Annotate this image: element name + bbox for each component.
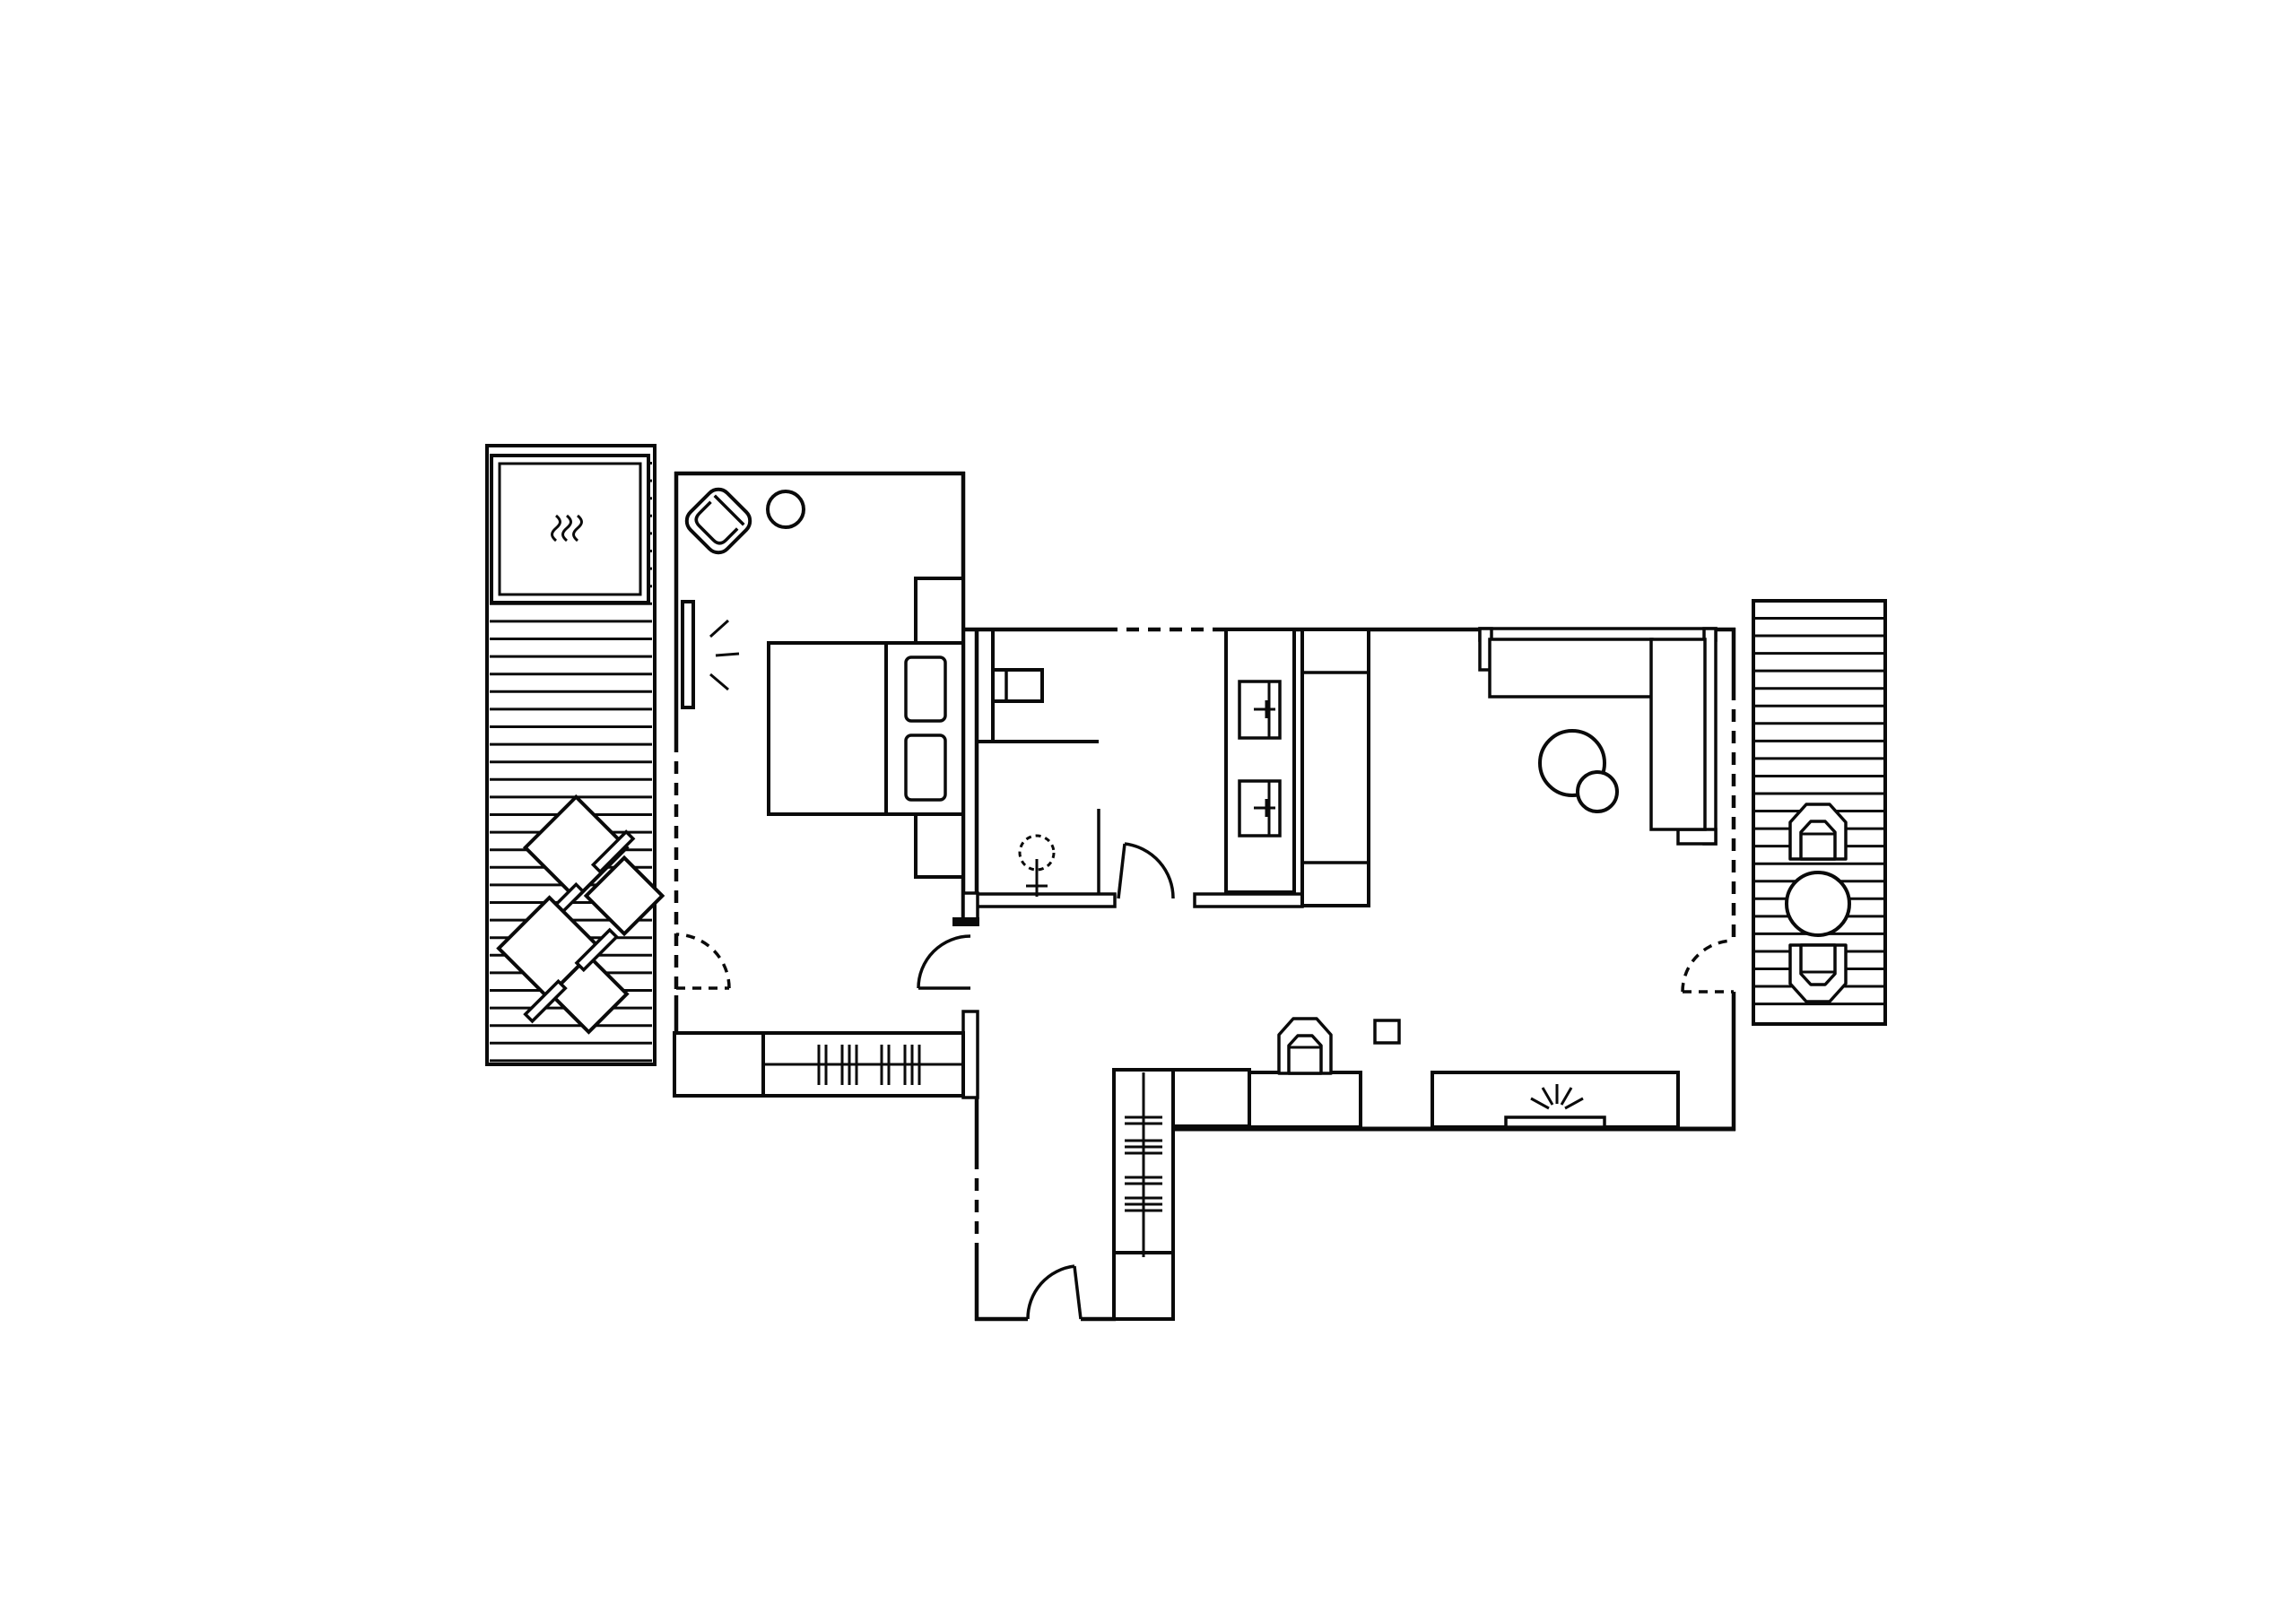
floorplan-page — [0, 0, 2296, 1623]
deck-chair-bottom-inner — [1801, 945, 1835, 985]
wall-mirror — [683, 602, 693, 707]
sofa-seat-vertical — [1651, 639, 1705, 829]
mirror-ray — [710, 621, 728, 637]
sofa-seat-horizontal — [1490, 639, 1652, 697]
coffee-table-small — [1578, 772, 1617, 811]
hall-cabinet — [1173, 1070, 1249, 1126]
bedroom-side-table — [768, 491, 804, 527]
nightstand-bottom — [916, 814, 963, 877]
deck-table — [1787, 872, 1849, 935]
tall-cabinet — [1302, 629, 1369, 906]
bathroom-sink — [993, 670, 1042, 701]
waste-bin — [1375, 1020, 1399, 1043]
tv — [1506, 1117, 1605, 1127]
door-jamb-cap — [952, 917, 979, 926]
mirror-ray — [710, 674, 728, 690]
appliance-column — [1226, 629, 1294, 892]
wall-slab-bathroom-left — [977, 894, 1115, 907]
wall-slab-bathroom-right — [1195, 894, 1302, 907]
entry-door-arc — [1028, 1266, 1074, 1319]
bathroom-door-arc — [1125, 844, 1173, 898]
desk-chair-inner — [1289, 1036, 1321, 1073]
bathroom-door-leaf — [1118, 844, 1125, 898]
pillow — [906, 735, 945, 800]
armchair-outer — [682, 484, 755, 558]
hot-tub-outer — [491, 456, 648, 603]
floorplan-canvas — [0, 0, 2296, 1623]
deck-door-living-arc — [1683, 941, 1734, 992]
mirror-ray — [716, 654, 739, 655]
nightstand-top — [916, 578, 963, 643]
entry-door-leaf — [1074, 1266, 1081, 1319]
deck-door-bedroom-arc — [676, 934, 729, 988]
deck-chair-top-inner — [1801, 821, 1835, 859]
pillow — [906, 657, 945, 721]
hall-desk — [1249, 1072, 1361, 1127]
sofa-armrest-bottom — [1678, 829, 1716, 844]
wall-pillar-bedroom-door — [963, 1011, 978, 1098]
bedroom-door-arc — [918, 936, 970, 988]
